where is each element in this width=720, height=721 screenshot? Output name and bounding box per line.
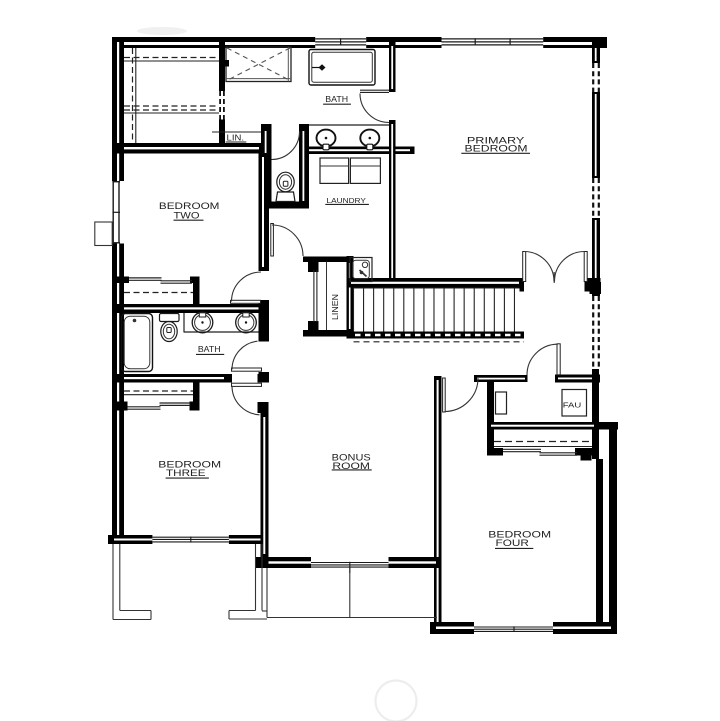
svg-text:FOUR: FOUR bbox=[496, 538, 530, 548]
svg-text:LIN.: LIN. bbox=[227, 134, 245, 143]
svg-text:LINEN: LINEN bbox=[330, 294, 340, 320]
svg-text:TWO: TWO bbox=[174, 210, 200, 220]
svg-text:FAU: FAU bbox=[563, 400, 582, 409]
svg-text:THREE: THREE bbox=[166, 468, 206, 478]
svg-text:BATH: BATH bbox=[198, 345, 221, 354]
svg-text:BATH: BATH bbox=[325, 95, 348, 104]
